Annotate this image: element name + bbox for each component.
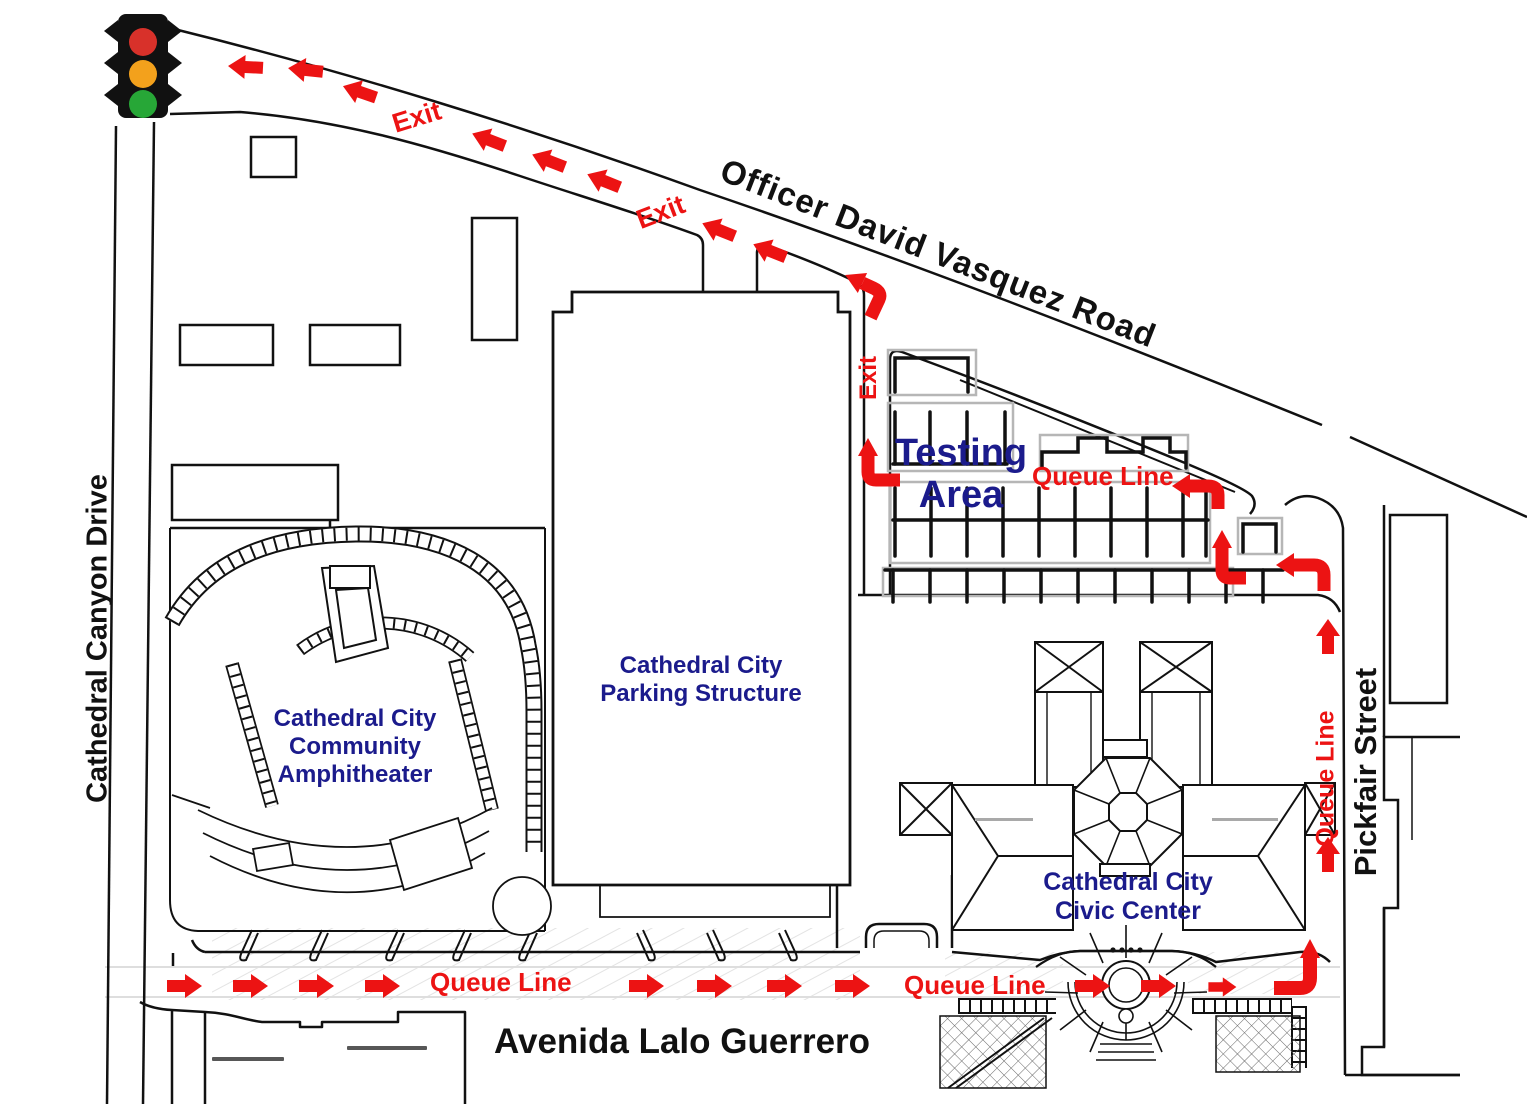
site-map: Officer David Vasquez Road Cathedral Can… (0, 0, 1527, 1104)
queue-line-label-testing: Queue Line (1032, 461, 1174, 492)
parking-structure-outline (553, 292, 850, 917)
queue-line-label-pickfair: Queue Line (1312, 669, 1341, 889)
road-label-pickfair: Pickfair Street (1348, 612, 1384, 932)
illegible-fine-print-2 (347, 1046, 427, 1050)
amphitheater-label: Cathedral City Community Amphitheater (255, 705, 455, 789)
queue-line-label-avenida-west: Queue Line (430, 967, 572, 998)
testing-area-label: Testing Area (886, 432, 1036, 516)
road-label-cathedral-canyon: Cathedral Canyon Drive (82, 429, 115, 849)
exit-label-3: Exit (855, 338, 883, 418)
civic-center-label: Cathedral City Civic Center (1028, 868, 1228, 926)
traffic-signal-icon (104, 14, 182, 118)
wing-detail-bar-west (975, 818, 1033, 821)
parking-structure-label: Cathedral City Parking Structure (600, 652, 802, 708)
wing-detail-bar-east (1212, 818, 1278, 821)
illegible-fine-print-1 (212, 1057, 284, 1061)
queue-line-label-avenida-east: Queue Line (904, 970, 1046, 1001)
road-label-avenida-lalo-guerrero: Avenida Lalo Guerrero (494, 1022, 870, 1062)
civic-plaza-drawing (940, 925, 1300, 1088)
